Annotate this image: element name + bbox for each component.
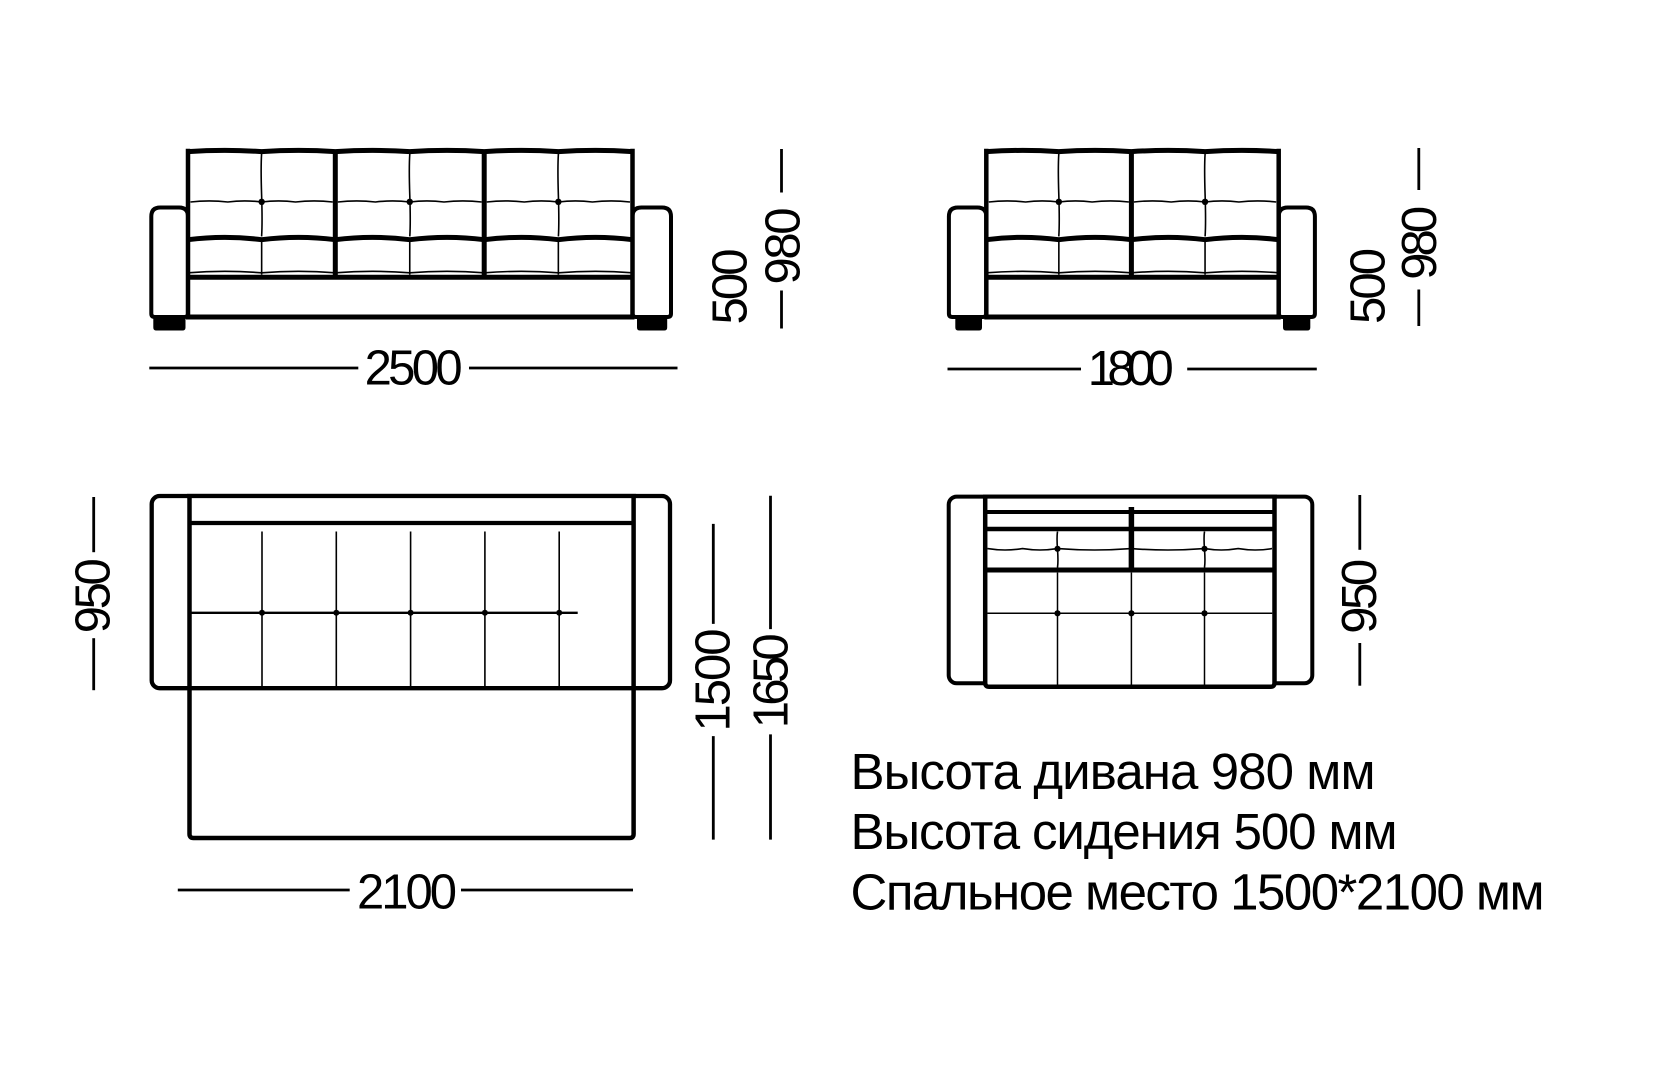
svg-text:Спальное место 1500*2100 мм: Спальное место 1500*2100 мм xyxy=(851,864,1545,921)
svg-text:2500: 2500 xyxy=(365,342,463,396)
svg-text:Высота дивана 980 мм: Высота дивана 980 мм xyxy=(851,743,1376,800)
svg-text:Высота сидения 500 мм: Высота сидения 500 мм xyxy=(851,803,1398,860)
svg-text:1800: 1800 xyxy=(1088,342,1174,396)
svg-text:980: 980 xyxy=(1393,206,1447,280)
svg-text:950: 950 xyxy=(1333,559,1387,634)
svg-text:980: 980 xyxy=(756,208,810,285)
svg-text:2100: 2100 xyxy=(357,866,457,920)
svg-text:500: 500 xyxy=(1341,248,1395,324)
svg-text:1650: 1650 xyxy=(744,633,798,728)
svg-text:1500: 1500 xyxy=(687,629,741,732)
svg-text:500: 500 xyxy=(703,249,757,325)
svg-text:950: 950 xyxy=(66,558,120,633)
